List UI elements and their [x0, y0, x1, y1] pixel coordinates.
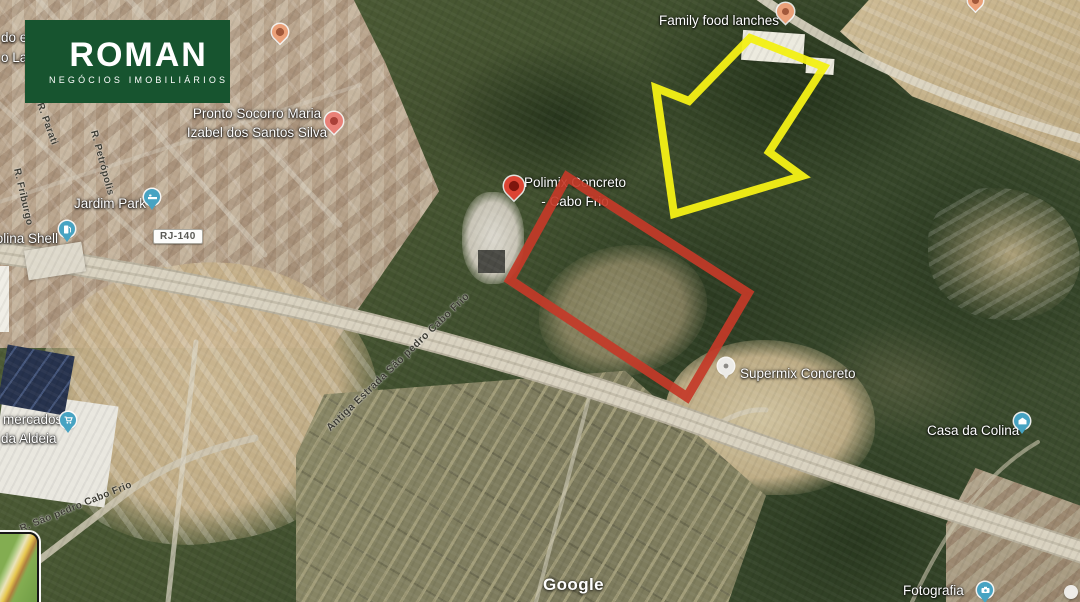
dot-icon [722, 362, 730, 370]
road-shield-rj140: RJ-140 [153, 229, 203, 244]
logo-tagline: NEGÓCIOS IMOBILIÁRIOS [49, 75, 228, 85]
streetview-thumbnail[interactable] [0, 532, 39, 602]
supermix-pin-icon[interactable] [718, 358, 734, 374]
place-label-fotografia[interactable]: Fotografia [903, 583, 964, 598]
cart-icon [64, 416, 73, 425]
shopping-cart-pin-icon[interactable] [60, 412, 76, 428]
lodging-pin-icon[interactable] [1014, 413, 1030, 429]
label-line: Polimix Concreto [524, 173, 626, 192]
solar-panel-roof [0, 345, 75, 416]
google-watermark[interactable]: Google [543, 575, 604, 595]
camera-pin-icon[interactable] [977, 582, 993, 598]
place-label-colina-shell[interactable]: Colina Shell [0, 231, 58, 246]
concrete-plant-building [478, 250, 505, 273]
place-label-casa-da-colina[interactable]: Casa da Colina [927, 423, 1019, 438]
label-line: Izabel dos Santos Silva [187, 123, 327, 142]
family-food-building-2 [805, 57, 834, 75]
label-line: Pronto Socorro Maria [187, 104, 327, 123]
place-label-pronto-socorro[interactable]: Pronto Socorro Maria Izabel dos Santos S… [187, 104, 327, 142]
fuel-pump-icon [63, 225, 71, 234]
camera-icon [981, 586, 990, 594]
building-left-edge [0, 266, 9, 332]
fuel-pin-icon[interactable] [59, 221, 75, 237]
lodging-pin-icon[interactable] [144, 189, 160, 205]
place-label-family-food[interactable]: Family food lanches [659, 13, 779, 28]
edge-fragment-label: do e [1, 30, 27, 45]
label-line: - Cabo Frio [524, 192, 626, 211]
building-icon [1018, 417, 1027, 425]
logo-brand-text: ROMAN [69, 38, 207, 72]
place-label-polimix[interactable]: Polimix Concreto - Cabo Frio [524, 173, 626, 211]
place-label-supermix[interactable]: Supermix Concreto [740, 366, 856, 381]
family-food-building [741, 30, 805, 64]
label-line: da Aldeia [1, 429, 62, 448]
satellite-map[interactable]: Antiga Estrada São pedro Cabo Frio R. Sã… [0, 0, 1080, 602]
roman-logo: R ROMAN NEGÓCIOS IMOBILIÁRIOS [25, 20, 230, 103]
cut-pin-edge-icon [1064, 585, 1078, 599]
place-label-mercados[interactable]: mercados da Aldeia [3, 410, 62, 448]
label-line: mercados [3, 410, 62, 429]
place-label-jardim-park[interactable]: Jardim Park [74, 196, 146, 211]
bed-icon [148, 193, 157, 201]
